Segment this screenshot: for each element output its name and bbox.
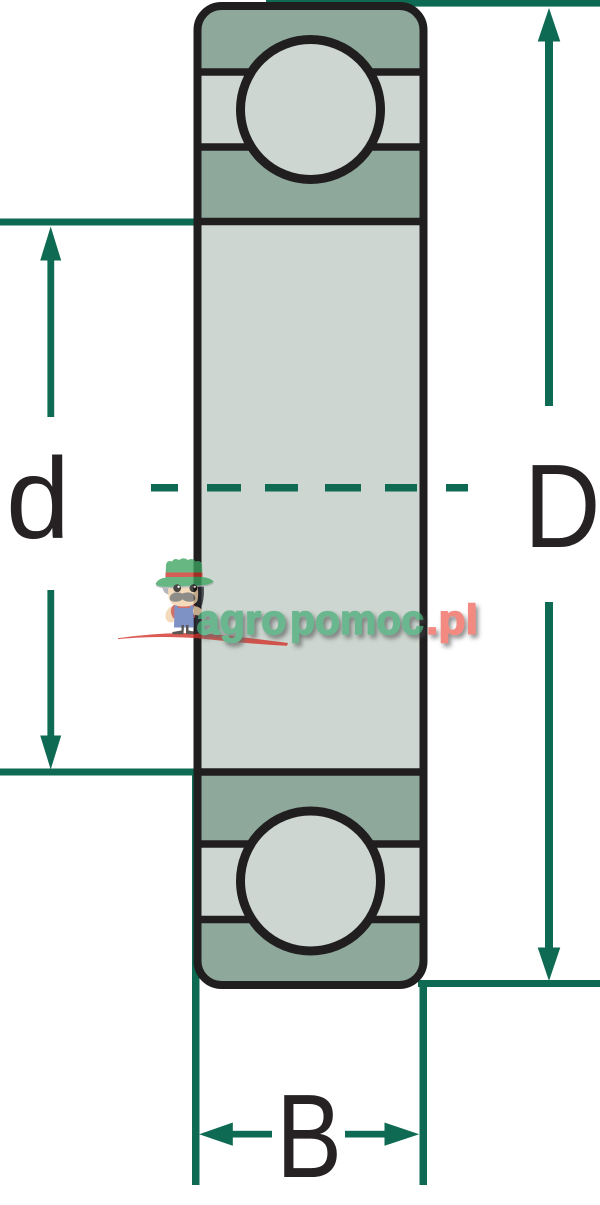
svg-text:agro: agro <box>197 596 287 643</box>
svg-text:B: B <box>276 1070 342 1203</box>
svg-text:D: D <box>524 439 600 572</box>
svg-text:pomoc: pomoc <box>290 596 424 643</box>
svg-text:.pl: .pl <box>426 596 478 643</box>
svg-text:d: d <box>6 435 70 563</box>
